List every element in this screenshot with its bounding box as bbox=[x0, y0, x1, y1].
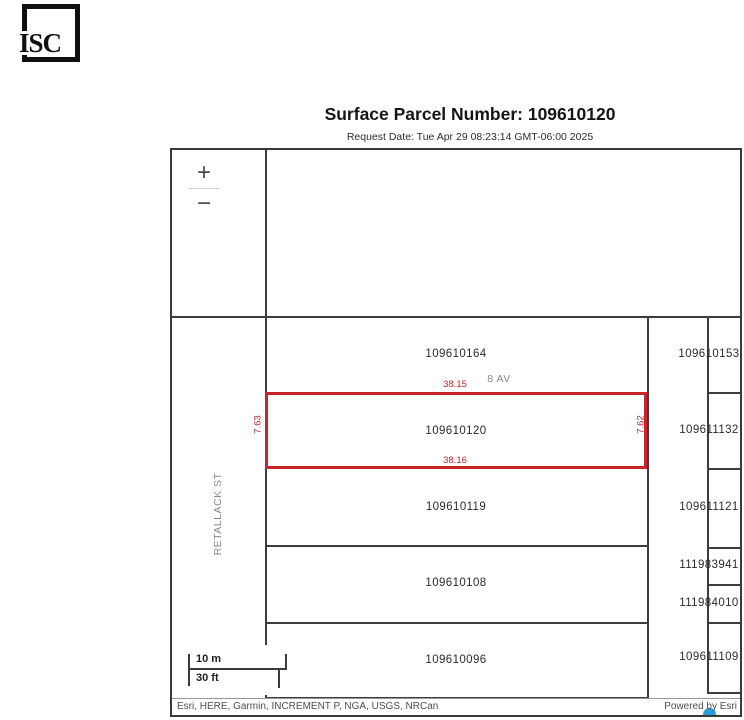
parcel-boundary-line bbox=[265, 545, 648, 547]
street-name-label: RETALLACK ST bbox=[212, 459, 224, 569]
dimension-bottom: 38.16 bbox=[415, 455, 495, 466]
zoom-out-button[interactable]: − bbox=[186, 191, 222, 217]
parcel-boundary-line bbox=[707, 584, 740, 586]
parcel-label-109611121: 109611121 bbox=[669, 501, 742, 513]
parcel-label-109611132: 109611132 bbox=[669, 424, 742, 436]
parcel-boundary-line bbox=[707, 622, 740, 624]
parcel-label-109610153: 109610153 bbox=[669, 348, 742, 360]
parcel-label-109610096: 109610096 bbox=[406, 654, 506, 666]
parcel-boundary-line bbox=[707, 547, 740, 549]
scale-bar-metric-tick bbox=[285, 654, 287, 670]
parcel-boundary-line bbox=[707, 692, 740, 694]
block-east-boundary-line bbox=[647, 316, 649, 699]
isc-logo: ISC bbox=[22, 4, 80, 62]
parcel-boundary-line bbox=[707, 392, 740, 394]
request-date: Request Date: Tue Apr 29 08:23:14 GMT-06… bbox=[170, 131, 744, 143]
parcel-boundary-line bbox=[265, 622, 648, 624]
isc-logo-text: ISC bbox=[19, 31, 65, 55]
scale-bar-baseline bbox=[188, 668, 287, 670]
zoom-control: + − bbox=[186, 160, 222, 217]
attribution-bar: Esri, HERE, Garmin, INCREMENT P, NGA, US… bbox=[172, 698, 740, 715]
page: ISC Surface Parcel Number: 109610120 Req… bbox=[0, 0, 744, 720]
parcel-label-111984010: 111984010 bbox=[669, 597, 742, 609]
dimension-right: 7.62 bbox=[636, 407, 647, 443]
powered-by-esri: Powered by Esri bbox=[664, 699, 737, 715]
scale-imperial-label: 30 ft bbox=[196, 672, 219, 684]
scale-bar-left-tick bbox=[188, 654, 190, 686]
scale-bar-imperial-tick bbox=[278, 668, 280, 688]
scale-bar: 10 m 30 ft bbox=[180, 645, 294, 695]
avenue-label: 8 AV bbox=[464, 373, 534, 385]
parcel-label-109610164: 109610164 bbox=[406, 348, 506, 360]
page-title: Surface Parcel Number: 109610120 bbox=[170, 104, 744, 125]
zoom-control-divider bbox=[188, 188, 220, 189]
road-boundary-line bbox=[172, 316, 740, 318]
dimension-left: 7.63 bbox=[253, 407, 264, 443]
parcel-label-111983941: 111983941 bbox=[669, 559, 742, 571]
parcel-boundary-line bbox=[707, 468, 740, 470]
scale-metric-label: 10 m bbox=[196, 653, 221, 665]
parcel-label-109611109: 109611109 bbox=[669, 651, 742, 663]
parcel-label-109610108: 109610108 bbox=[406, 577, 506, 589]
attribution-sources: Esri, HERE, Garmin, INCREMENT P, NGA, US… bbox=[177, 699, 438, 715]
parcel-label-109610120: 109610120 bbox=[406, 425, 506, 437]
zoom-in-button[interactable]: + bbox=[186, 160, 222, 186]
parcel-label-109610119: 109610119 bbox=[406, 501, 506, 513]
map-canvas[interactable]: 38.15 38.16 7.63 7.62 8 AV RETALLACK ST … bbox=[170, 148, 742, 717]
